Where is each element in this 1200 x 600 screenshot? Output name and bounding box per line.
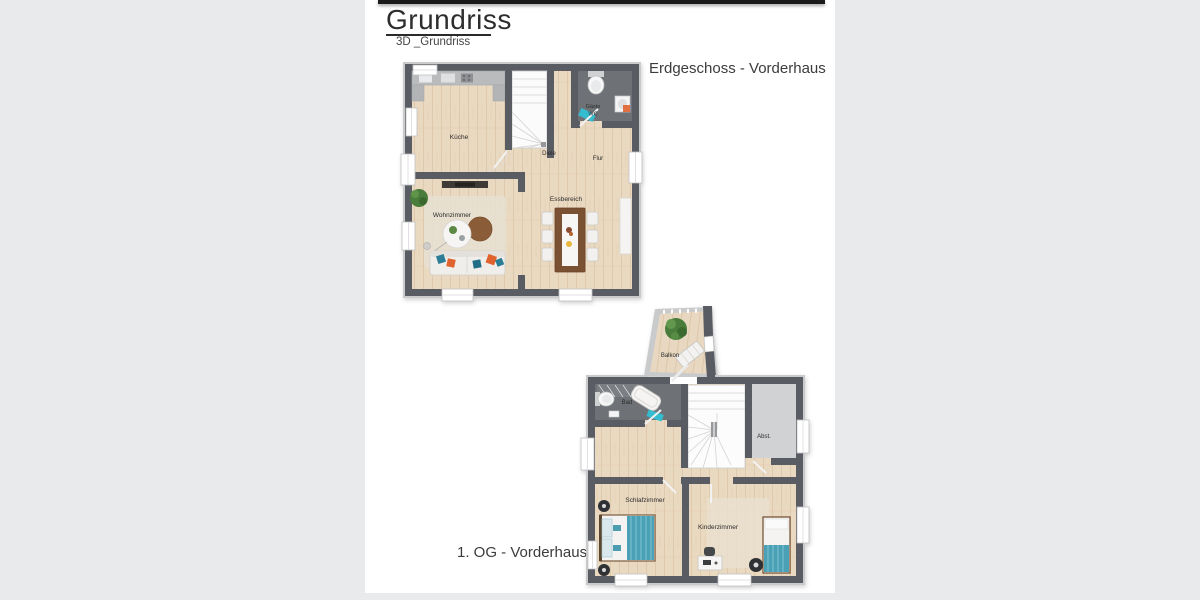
storage-floor [752, 384, 796, 458]
room-label-diele: Diele [542, 151, 556, 157]
room-label-schlafzimmer: Schlafzimmer [625, 497, 665, 504]
room-label-kueche: Küche [450, 134, 469, 141]
room-label-flur: Flur [593, 156, 603, 162]
screenshot-root: Grundriss 3D _Grundriss Erdgeschoss - Vo… [0, 0, 1200, 600]
toilet-icon [588, 71, 604, 94]
sideboard [620, 198, 631, 254]
single-bed [763, 517, 790, 573]
floorplan-erdgeschoss: Küche Diele Flur Gäste WC Wohnzimmer Ess… [397, 58, 645, 303]
og-staircase [688, 385, 745, 468]
tv-sideboard [442, 181, 488, 188]
double-bed [599, 515, 655, 561]
room-label-abstellraum: Abst. [757, 434, 771, 440]
room-label-gaeste-wc-1: Gäste [586, 104, 601, 110]
wc-sink [615, 96, 630, 112]
room-label-balkon: Balkon [661, 353, 679, 359]
bath-sink [609, 411, 619, 417]
page-subtitle: 3D _Grundriss [396, 36, 470, 48]
caption-obergeschoss: 1. OG - Vorderhaus [457, 544, 587, 561]
room-label-essbereich: Essbereich [550, 196, 583, 203]
balcony-plant-icon [665, 318, 687, 340]
floorplan-obergeschoss: Balkon Bad Abst. Schlafzimmer Kinderzimm… [575, 303, 810, 588]
round-stool [749, 558, 763, 572]
room-label-bad: Bad [622, 400, 633, 406]
plant-icon [410, 189, 428, 207]
og-toilet-icon [595, 392, 614, 406]
staircase [512, 71, 547, 148]
balcony [644, 306, 718, 378]
bathroom [595, 383, 681, 421]
balcony-window [704, 336, 714, 352]
room-label-wohnzimmer: Wohnzimmer [433, 212, 472, 219]
room-label-gaeste-wc-2: WC [588, 112, 597, 118]
caption-erdgeschoss: Erdgeschoss - Vorderhaus [649, 60, 826, 77]
page-title: Grundriss [386, 4, 512, 36]
room-label-kinderzimmer: Kinderzimmer [698, 524, 739, 531]
